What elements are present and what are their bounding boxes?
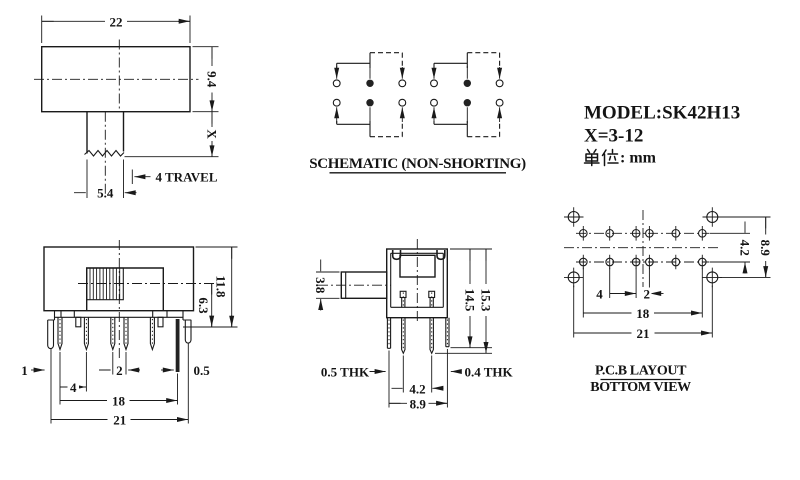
mount-leg-right	[185, 320, 191, 343]
dim-pitch-small-text: 2	[116, 363, 123, 378]
dim-pin-gap: 4.2	[392, 381, 444, 396]
dim-total-span-text: 21	[113, 413, 126, 428]
dim-thk-left-text: 0.5 THK	[321, 365, 370, 380]
pcb-dim-row-gap-text: 4.2	[738, 240, 753, 256]
dim-pin-thk: 0.5	[161, 363, 210, 378]
pcb-dim-row-gap: 4.2	[738, 222, 753, 274]
front-body-outline	[44, 247, 194, 311]
dim-outer-gap-text: 8.9	[410, 396, 427, 411]
pcb-title-line1: P.C.B LAYOUT	[595, 364, 687, 379]
dim-pin-gap-text: 4.2	[409, 381, 425, 396]
dim-pitch-small: 2	[99, 363, 140, 378]
dim-pitch: 4	[60, 380, 86, 395]
dim-leg-width-text: 1	[21, 363, 28, 378]
schematic-pole-group-2	[431, 53, 503, 137]
travel-label: 4 TRAVEL	[156, 170, 218, 185]
side-extension-lines	[316, 249, 492, 408]
dim-outer-gap: 8.9	[389, 396, 447, 411]
schematic-title: SCHEMATIC (NON-SHORTING)	[309, 156, 526, 172]
locating-peg-left	[76, 317, 81, 327]
highlighted-pin	[176, 319, 180, 372]
dim-height: 9.4	[205, 47, 220, 112]
dim-pin-span: 18	[60, 394, 178, 409]
pcb-dim-pitch-small-text: 2	[643, 287, 650, 302]
dim-pin-span-text: 18	[112, 394, 126, 409]
unit-suffix-text: : mm	[620, 150, 657, 167]
schematic-pole-group	[333, 53, 405, 137]
pcb-dim-pitch-text: 4	[596, 287, 603, 302]
pcb-layout: 4 2 18 21 4.2 8.9 P.C.B LAYOUT BOTTOM VI…	[564, 207, 773, 395]
dim-pin-thk-text: 0.5	[194, 363, 211, 378]
dim-knob-h: 3.8	[313, 260, 328, 311]
dim-total-height: 11.8	[214, 247, 232, 327]
mount-leg-left	[48, 320, 54, 349]
pcb-dim-mount-gap: 8.9	[758, 217, 773, 277]
pcb-dim-mount-span-text: 21	[637, 326, 650, 341]
pcb-dim-pitch-small: 2	[642, 287, 664, 302]
technical-drawing: 22 9.4 X 5.4 4 TRAVEL SCHEMATIC (NON-	[0, 0, 800, 480]
pcb-dim-mount-span: 21	[574, 326, 713, 341]
dim-width: 22	[42, 14, 190, 29]
locating-peg-right	[158, 317, 163, 327]
x-range-text: X=3-12	[584, 126, 643, 147]
dim-knob-width: 5.4	[74, 186, 137, 201]
dim-h-inner: 14.5	[463, 249, 478, 348]
dim-pitch-text: 4	[70, 380, 77, 395]
dim-h-outer: 15.3	[479, 249, 494, 353]
side-legs	[387, 318, 449, 354]
break-line-zigzag	[85, 151, 125, 157]
dim-thk-right: 0.4 THK	[451, 365, 514, 380]
pcb-centerlines	[564, 210, 718, 287]
dim-h-outer-text: 15.3	[479, 289, 494, 312]
model-text: MODEL:SK42H13	[584, 103, 740, 124]
datasheet-drawing-page: 22 9.4 X 5.4 4 TRAVEL SCHEMATIC (NON-	[0, 0, 800, 480]
front-view: 1 2 0.5 4 18 21 6.3 11.8	[21, 240, 237, 428]
dim-leg-width: 1	[21, 363, 44, 378]
side-view: 3.8 14.5 15.3 0.5 THK 0.4 THK 4.2 8.9	[313, 239, 513, 411]
dim-pin-height: 6.3	[196, 284, 212, 328]
info-block: MODEL:SK42H13 X=3-12 : mm	[584, 103, 740, 167]
dim-width-text: 22	[110, 14, 123, 29]
unit-label-cjk-glyphs	[585, 150, 619, 166]
dim-x: X	[205, 112, 220, 157]
dim-thk-left: 0.5 THK	[321, 365, 386, 380]
dim-pin-height-text: 6.3	[196, 297, 211, 314]
dim-height-text: 9.4	[205, 71, 220, 88]
pcb-dim-pitch: 4	[596, 287, 636, 302]
front-frame	[87, 268, 164, 311]
dim-knob-width-text: 5.4	[97, 186, 114, 201]
knob-hatch	[90, 269, 120, 300]
pcb-dim-span-text: 18	[636, 306, 650, 321]
dim-knob-h-text: 3.8	[313, 277, 328, 294]
schematic: SCHEMATIC (NON-SHORTING)	[309, 53, 526, 173]
pcb-dim-mount-gap-text: 8.9	[758, 240, 773, 257]
dim-total-span: 21	[51, 413, 188, 428]
top-view: 22 9.4 X 5.4 4 TRAVEL	[34, 14, 220, 200]
front-extension-lines	[51, 247, 238, 424]
dim-h-inner-text: 14.5	[463, 289, 478, 312]
dim-total-height-text: 11.8	[214, 275, 229, 298]
dim-thk-right-text: 0.4 THK	[465, 365, 514, 380]
dim-x-text: X	[205, 129, 220, 139]
pcb-title-line2: BOTTOM VIEW	[590, 380, 691, 395]
pcb-dim-span: 18	[583, 306, 702, 321]
dim-travel: 4 TRAVEL	[134, 170, 217, 185]
